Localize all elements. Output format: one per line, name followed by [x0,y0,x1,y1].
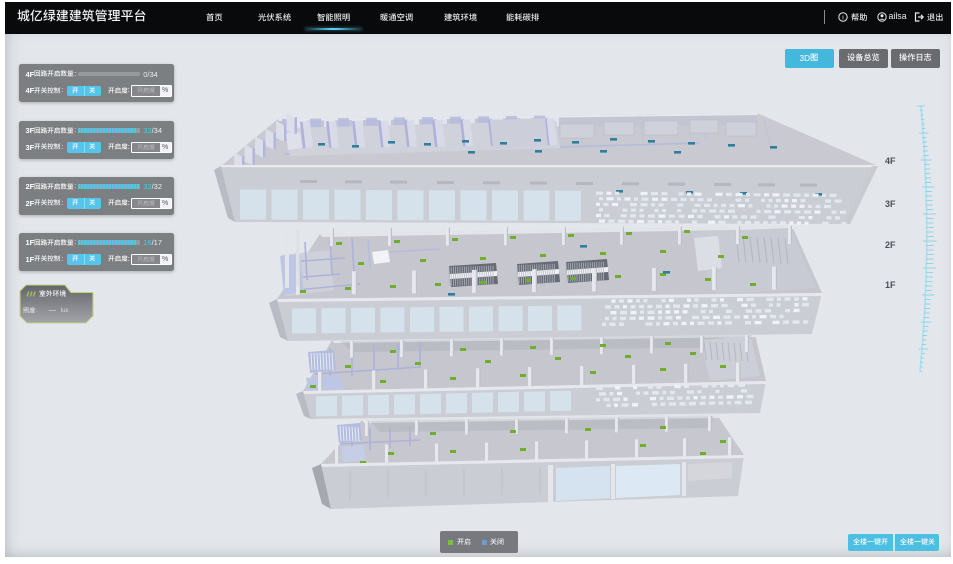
svg-text:1F: 1F [885,280,896,290]
svg-text:2F: 2F [885,240,896,250]
svg-text:3F: 3F [885,199,896,209]
svg-text:4F: 4F [885,156,896,166]
